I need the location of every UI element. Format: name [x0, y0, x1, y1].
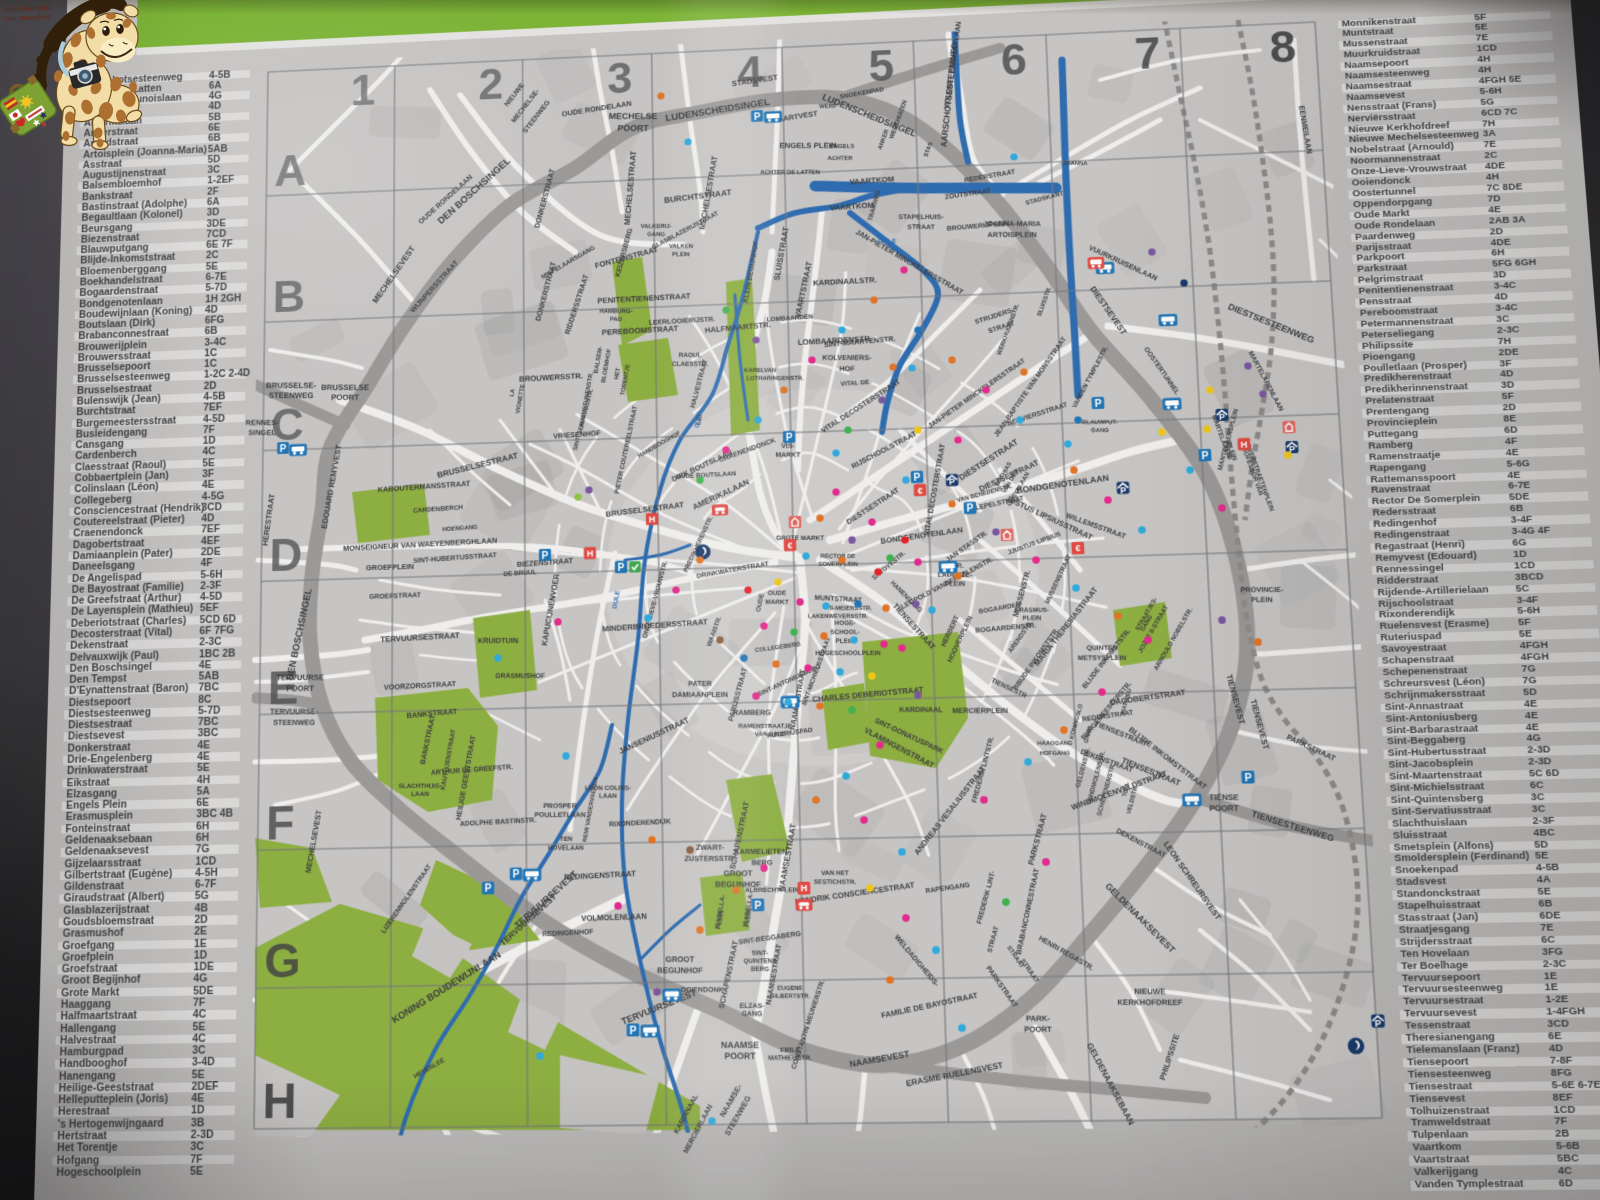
svg-text:MARKT: MARKT — [765, 600, 789, 607]
svg-text:LOTHARINGENSTR.: LOTHARINGENSTR. — [746, 376, 804, 382]
svg-text:GANG: GANG — [742, 1011, 763, 1018]
svg-text:1: 1 — [350, 66, 375, 115]
svg-text:OOIENDONK: OOIENDONK — [681, 986, 724, 994]
svg-text:SINGEL: SINGEL — [248, 430, 276, 437]
svg-text:HAAGGANG: HAAGGANG — [1037, 740, 1072, 747]
svg-text:GROOT: GROOT — [666, 956, 696, 964]
svg-text:HOVELAAN: HOVELAAN — [548, 845, 584, 852]
svg-text:STEENWEG: STEENWEG — [273, 719, 315, 727]
svg-text:VAN DALE: VAN DALE — [755, 731, 786, 738]
svg-text:RAOUL: RAOUL — [679, 353, 702, 359]
svg-text:3: 3 — [607, 53, 633, 102]
svg-text:POORT: POORT — [286, 684, 315, 693]
svg-text:GROTE MARKT: GROTE MARKT — [776, 536, 825, 543]
svg-text:HOF: HOF — [839, 366, 855, 374]
svg-text:RAMENSTRAATJE: RAMENSTRAATJE — [738, 723, 792, 730]
svg-text:PROSPER: PROSPER — [543, 802, 577, 810]
svg-text:OUDE: OUDE — [768, 591, 787, 598]
svg-text:TERVUURSE-: TERVUURSE- — [270, 709, 318, 717]
svg-text:4: 4 — [737, 47, 764, 97]
svg-text:BLAUWPUT-: BLAUWPUT- — [1082, 420, 1118, 427]
svg-text:€: € — [1075, 543, 1081, 554]
svg-text:A: A — [274, 146, 307, 196]
svg-text:LAAN: LAAN — [411, 791, 429, 798]
svg-text:LAAN: LAAN — [599, 793, 617, 800]
svg-text:P: P — [754, 111, 761, 122]
svg-text:HAMBURG-: HAMBURG- — [599, 309, 633, 315]
svg-text:MARKT: MARKT — [775, 452, 800, 460]
svg-text:ACHTER: ACHTER — [827, 156, 852, 162]
svg-text:P: P — [913, 472, 920, 483]
svg-text:SCHOOL-: SCHOOL- — [830, 630, 860, 637]
svg-text:ERASMUS-: ERASMUS- — [1015, 608, 1049, 615]
svg-text:STRAAT: STRAAT — [907, 224, 935, 231]
svg-text:POORT: POORT — [617, 124, 648, 133]
svg-text:ELZAS-: ELZAS- — [740, 1003, 765, 1010]
svg-text:VALKERIJ-: VALKERIJ- — [640, 224, 671, 230]
svg-text:POORT: POORT — [1209, 804, 1240, 813]
svg-text:POORT: POORT — [724, 1051, 756, 1062]
svg-text:P: P — [513, 869, 520, 881]
svg-text:VALKEN: VALKEN — [669, 244, 693, 250]
svg-text:VIS-: VIS- — [781, 443, 795, 451]
svg-text:H: H — [800, 882, 807, 894]
svg-text:8: 8 — [1268, 22, 1297, 72]
svg-text:PLEIN: PLEIN — [1251, 596, 1273, 604]
svg-text:SESTICHSTR.: SESTICHSTR. — [814, 879, 857, 886]
svg-text:GANG: GANG — [647, 232, 665, 238]
svg-text:GRASMUSHOF: GRASMUSHOF — [495, 672, 545, 680]
svg-text:P: P — [485, 883, 492, 895]
svg-text:GROOT: GROOT — [724, 870, 754, 878]
svg-text:KARMELIETEN-: KARMELIETEN- — [734, 848, 789, 856]
svg-text:MECHELSE: MECHELSE — [609, 112, 659, 121]
svg-text:ZUSTERSSTR.: ZUSTERSSTR. — [684, 855, 736, 863]
svg-text:PATER: PATER — [688, 680, 712, 688]
svg-text:PLEIN: PLEIN — [672, 252, 690, 258]
svg-text:G: G — [264, 934, 301, 988]
svg-text:MERCIERPLEIN: MERCIERPLEIN — [952, 707, 1008, 715]
svg-text:RECTOR DE: RECTOR DE — [820, 554, 856, 561]
svg-text:HOFGANG: HOFGANG — [1040, 750, 1070, 757]
svg-text:F: F — [266, 796, 295, 849]
svg-text:ZWART-: ZWART- — [696, 844, 724, 852]
svg-text:RAMBERG: RAMBERG — [733, 709, 771, 717]
svg-text:SOMERPLEIN: SOMERPLEIN — [818, 562, 858, 569]
svg-text:H: H — [587, 548, 594, 559]
svg-text:P: P — [1244, 772, 1252, 784]
svg-text:H: H — [262, 1074, 297, 1129]
svg-text:KOLVENIERS-: KOLVENIERS- — [822, 355, 872, 363]
svg-text:ARTOISPLEIN: ARTOISPLEIN — [987, 232, 1037, 239]
svg-text:BERG: BERG — [751, 966, 770, 973]
svg-text:P: P — [280, 443, 287, 454]
svg-text:P: P — [542, 550, 549, 561]
svg-text:5: 5 — [868, 41, 895, 91]
svg-text:STAPELHUIS-: STAPELHUIS- — [898, 214, 943, 221]
svg-text:'S-MEIERSSTR.: 'S-MEIERSSTR. — [828, 605, 873, 612]
svg-text:KRUIDTUIN: KRUIDTUIN — [478, 637, 519, 645]
svg-text:TERVUURSE: TERVUURSE — [276, 673, 324, 682]
svg-text:EUGENE: EUGENE — [777, 985, 803, 992]
svg-text:PARK-: PARK- — [1026, 1015, 1050, 1023]
svg-text:BRUSSELSE-: BRUSSELSE- — [266, 381, 317, 391]
svg-text:P: P — [786, 432, 793, 443]
svg-text:SLACHTHUIS-: SLACHTHUIS- — [398, 783, 442, 790]
svg-text:JOANNA: JOANNA — [1063, 161, 1088, 167]
svg-text:P: P — [629, 1025, 636, 1037]
svg-text:TEN: TEN — [559, 836, 572, 843]
svg-text:PAD: PAD — [610, 317, 622, 323]
svg-text:KERKHOFDREEF: KERKHOFDREEF — [1117, 999, 1182, 1007]
svg-text:POORT: POORT — [331, 393, 360, 403]
svg-text:BEGIJNHOF: BEGIJNHOF — [657, 967, 703, 975]
svg-text:P: P — [1094, 398, 1101, 409]
svg-text:SINT-: SINT- — [752, 950, 769, 957]
svg-text:NIEUWE: NIEUWE — [1134, 988, 1166, 996]
svg-text:DAMIAANPLEIN: DAMIAANPLEIN — [672, 691, 728, 699]
svg-text:€: € — [787, 540, 793, 551]
svg-text:DIJLE: DIJLE — [878, 239, 896, 245]
svg-text:LAKENWEVERSSTR.: LAKENWEVERSSTR. — [808, 614, 869, 621]
svg-text:B: B — [272, 271, 305, 321]
svg-text:6: 6 — [1000, 35, 1028, 85]
svg-text:PLEIN: PLEIN — [1023, 615, 1042, 622]
svg-text:€: € — [917, 485, 923, 496]
svg-text:LA: LA — [509, 389, 517, 398]
svg-text:MATHIEUSTR.: MATHIEUSTR. — [768, 1055, 812, 1062]
svg-text:P: P — [949, 477, 955, 487]
svg-text:P: P — [1201, 450, 1209, 461]
svg-text:POORT: POORT — [1024, 1026, 1052, 1034]
svg-text:2: 2 — [478, 60, 503, 109]
svg-text:7: 7 — [1133, 28, 1161, 78]
svg-text:BRUSSELSE: BRUSSELSE — [321, 383, 369, 393]
svg-text:H: H — [1240, 439, 1247, 450]
svg-text:NAAMSE: NAAMSE — [721, 1040, 759, 1051]
svg-text:ENGELS PLEIN: ENGELS PLEIN — [779, 142, 836, 150]
svg-text:STEENWEG: STEENWEG — [269, 391, 314, 401]
svg-text:GROEFPLEIN: GROEFPLEIN — [366, 564, 414, 573]
svg-text:GANG: GANG — [1091, 428, 1109, 435]
svg-text:ACHTER DE LATTEN: ACHTER DE LATTEN — [760, 170, 820, 176]
svg-text:KARELVAN: KARELVAN — [744, 368, 776, 374]
svg-text:WERF: WERF — [819, 104, 837, 110]
svg-text:H: H — [649, 514, 656, 525]
svg-text:PROVINCIE-: PROVINCIE- — [1240, 586, 1283, 594]
svg-text:ENGELS: ENGELS — [830, 144, 855, 150]
svg-text:HOGE-: HOGE- — [834, 621, 855, 628]
svg-text:P: P — [1375, 1018, 1382, 1029]
svg-text:VAN HET: VAN HET — [821, 870, 849, 877]
svg-text:EMILE: EMILE — [780, 1047, 800, 1054]
svg-text:GILBERTSTR.: GILBERTSTR. — [770, 993, 811, 1000]
svg-text:P: P — [1120, 485, 1126, 495]
svg-text:P: P — [618, 562, 625, 573]
svg-text:TIENSE: TIENSE — [1209, 793, 1239, 802]
svg-text:D: D — [269, 529, 302, 581]
svg-text:RENNES-: RENNES- — [245, 420, 279, 427]
svg-text:POULLETLAAN: POULLETLAAN — [534, 811, 586, 819]
svg-text:P: P — [1219, 412, 1225, 422]
svg-text:KARDINAAL: KARDINAAL — [899, 706, 943, 714]
svg-text:P: P — [754, 900, 761, 912]
svg-text:P: P — [966, 503, 973, 514]
